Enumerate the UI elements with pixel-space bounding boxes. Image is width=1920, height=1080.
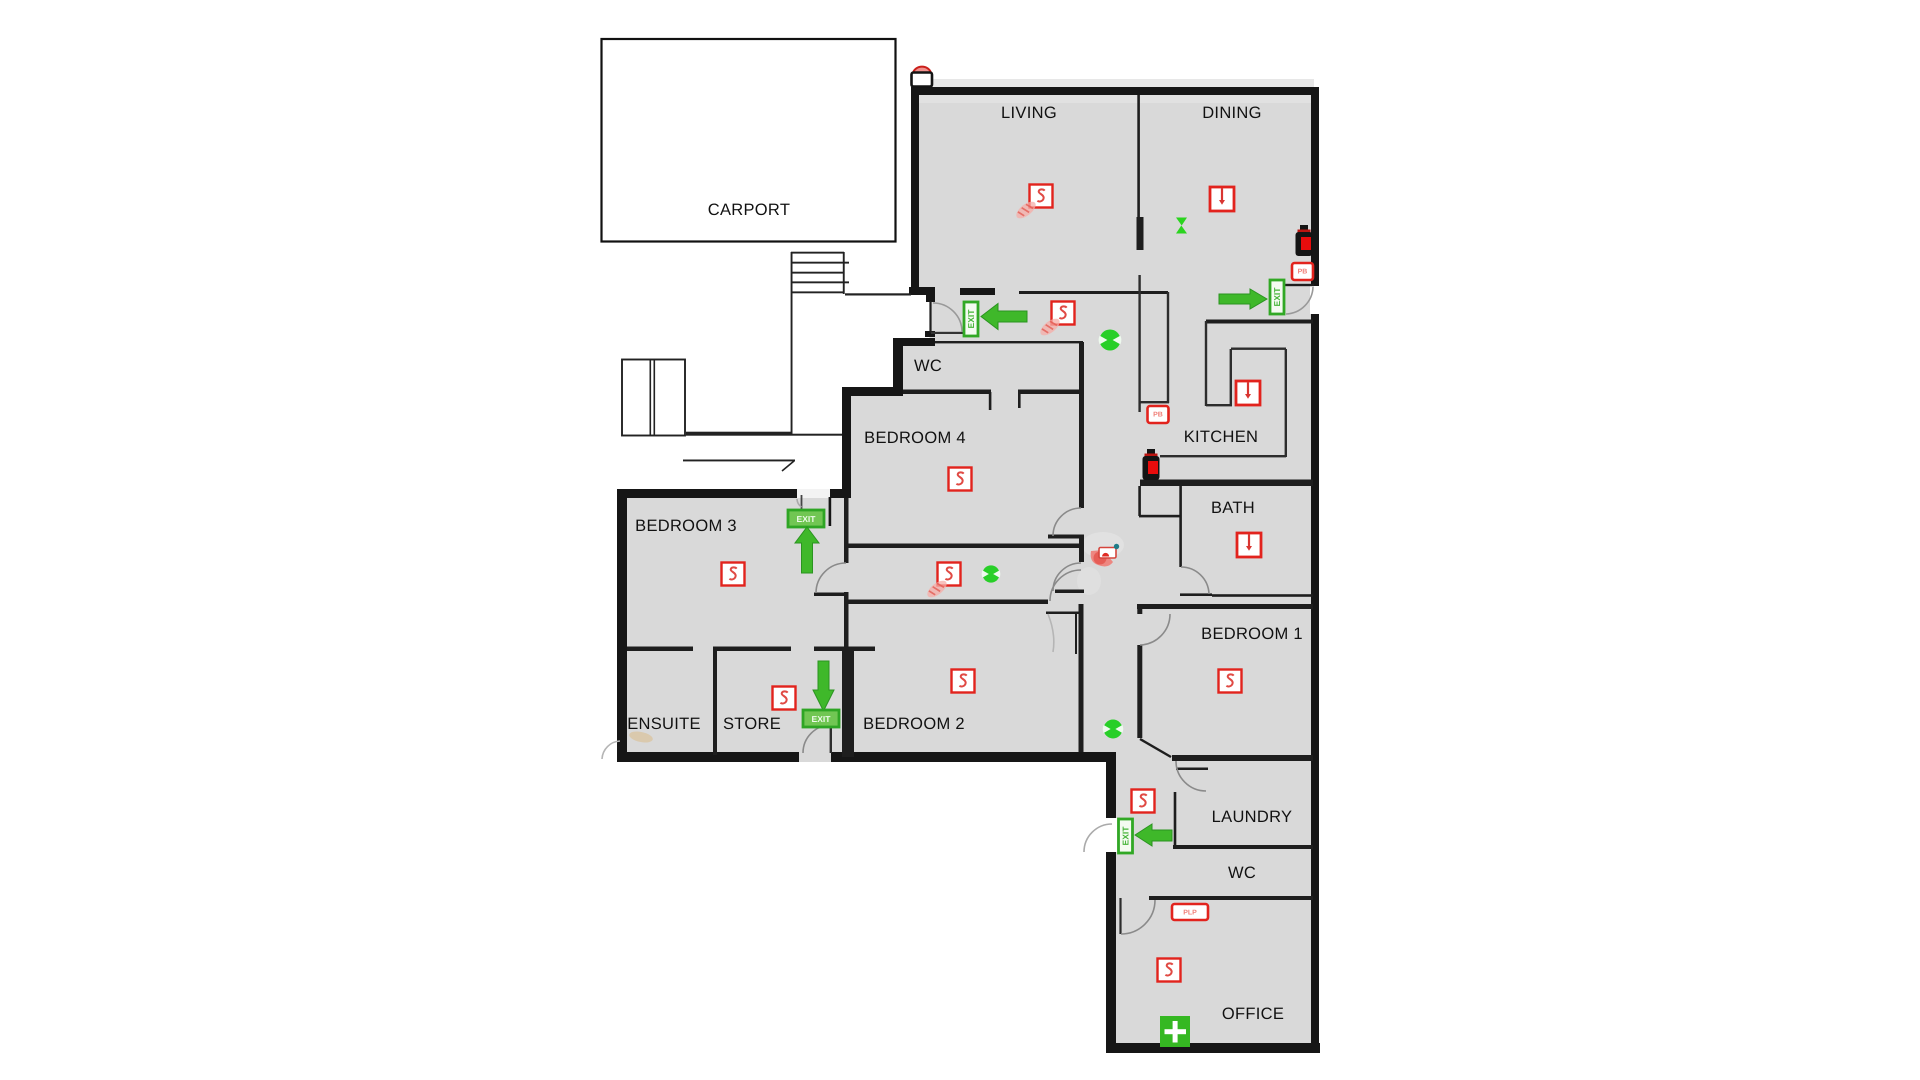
svg-text:CARPORT: CARPORT [708,201,790,219]
svg-text:BATH: BATH [1211,499,1255,517]
svg-text:KITCHEN: KITCHEN [1184,428,1259,446]
svg-text:OFFICE: OFFICE [1222,1005,1284,1023]
svg-text:WC: WC [914,357,942,375]
svg-text:ENSUITE: ENSUITE [627,715,701,733]
svg-text:BEDROOM 4: BEDROOM 4 [864,429,966,447]
svg-text:BEDROOM 3: BEDROOM 3 [635,517,737,535]
svg-text:WC: WC [1228,864,1256,882]
svg-text:DINING: DINING [1202,104,1262,122]
svg-text:STORE: STORE [723,715,781,733]
svg-text:BEDROOM 2: BEDROOM 2 [863,715,965,733]
svg-text:BEDROOM 1: BEDROOM 1 [1201,625,1303,643]
svg-text:LAUNDRY: LAUNDRY [1212,808,1293,826]
svg-text:LIVING: LIVING [1001,104,1057,122]
svg-text:PLP: PLP [1183,910,1197,917]
